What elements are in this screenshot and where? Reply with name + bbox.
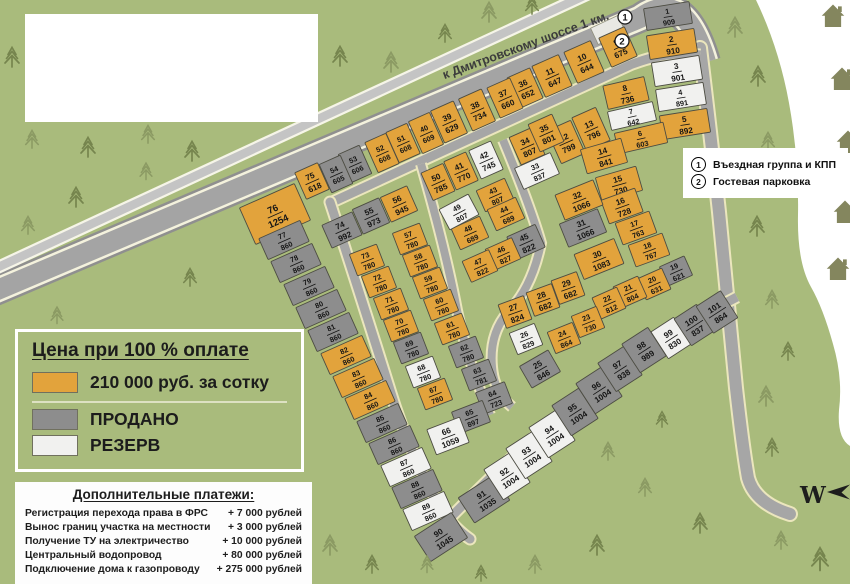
extra-payments-box: Дополнительные платежи: Регистрация пере…	[15, 482, 312, 584]
reserve-label: РЕЗЕРВ	[90, 435, 160, 456]
site-plan-map: 1909291039014891589266037642873696751064…	[0, 0, 850, 584]
marker-2-icon: 2	[691, 174, 706, 189]
payment-label: Центральный водопровод	[25, 549, 222, 563]
marker-legend-row-entrance: 1 Въездная группа и КПП	[691, 157, 840, 172]
marker-legend-row-parking: 2 Гостевая парковка	[691, 174, 840, 189]
sold-label: ПРОДАНО	[90, 409, 179, 430]
price-row-available: 210 000 руб. за сотку	[32, 372, 287, 393]
payment-label: Получение ТУ на электричество	[25, 535, 222, 549]
price-legend: Цена при 100 % оплате 210 000 руб. за со…	[15, 329, 304, 472]
payment-row: Получение ТУ на электричество + 10 000 р…	[25, 535, 302, 549]
blank-title-box	[25, 14, 318, 122]
marker-parking: 2	[615, 34, 629, 48]
marker-1-icon: 1	[691, 157, 706, 172]
payment-row: Подключение дома к газопроводу + 275 000…	[25, 563, 302, 577]
available-swatch-icon	[32, 372, 78, 393]
payment-value: + 3 000 рублей	[228, 521, 302, 535]
svg-text:1: 1	[622, 12, 628, 23]
extra-payments-title: Дополнительные платежи:	[25, 487, 302, 502]
payment-label: Вынос границ участка на местности	[25, 521, 228, 535]
marker-1-label: Въездная группа и КПП	[713, 159, 836, 171]
reserve-swatch-icon	[32, 435, 78, 456]
payment-row: Вынос границ участка на местности + 3 00…	[25, 521, 302, 535]
payment-value: + 275 000 рублей	[217, 563, 302, 577]
payment-row: Регистрация перехода права в ФРС + 7 000…	[25, 507, 302, 521]
payment-value: + 80 000 рублей	[222, 549, 302, 563]
marker-2-label: Гостевая парковка	[713, 176, 810, 188]
price-legend-title: Цена при 100 % оплате	[32, 340, 287, 362]
payment-label: Регистрация перехода права в ФРС	[25, 507, 228, 521]
svg-text:W: W	[799, 482, 827, 509]
svg-text:909: 909	[662, 17, 675, 28]
map-markers-legend: 1 Въездная группа и КПП 2 Гостевая парко…	[683, 148, 848, 198]
svg-text:891: 891	[675, 98, 688, 109]
svg-text:2: 2	[619, 36, 624, 47]
payment-label: Подключение дома к газопроводу	[25, 563, 217, 577]
payment-value: + 10 000 рублей	[222, 535, 302, 549]
marker-entrance: 1	[618, 10, 632, 24]
legend-divider	[32, 401, 287, 403]
sold-swatch-icon	[32, 409, 78, 430]
payment-value: + 7 000 рублей	[228, 507, 302, 521]
price-row-sold: ПРОДАНО	[32, 409, 287, 430]
payment-row: Центральный водопровод + 80 000 рублей	[25, 549, 302, 563]
available-price-label: 210 000 руб. за сотку	[90, 372, 269, 393]
price-row-reserve: РЕЗЕРВ	[32, 435, 287, 456]
